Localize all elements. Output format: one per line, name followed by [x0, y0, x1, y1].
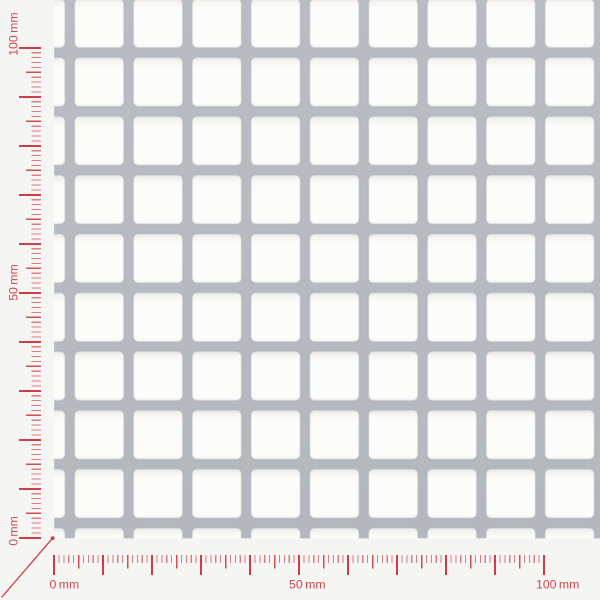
svg-text:50mm: 50mm	[289, 577, 326, 591]
svg-text:50mm: 50mm	[7, 264, 21, 301]
svg-text:0mm: 0mm	[7, 516, 21, 546]
svg-text:0mm: 0mm	[50, 577, 80, 591]
